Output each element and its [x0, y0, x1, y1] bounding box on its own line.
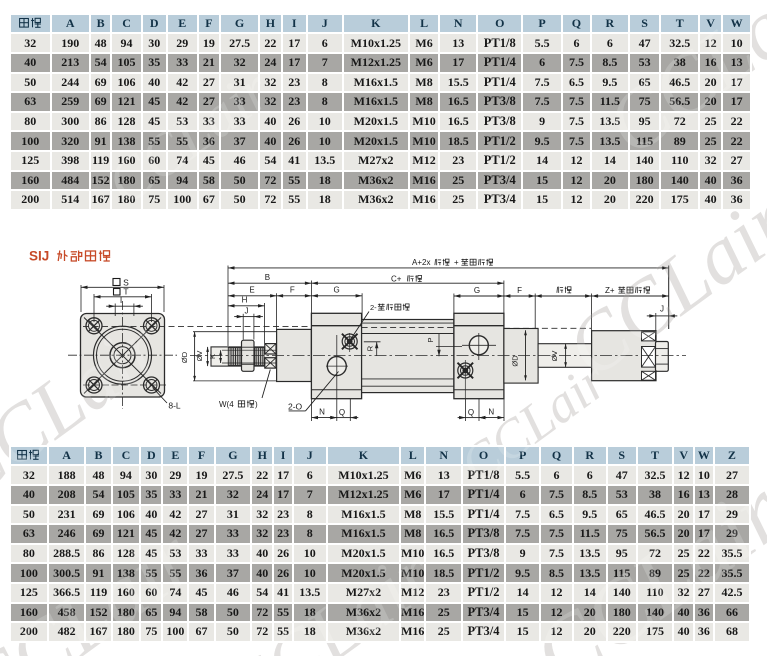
svg-text:H: H	[242, 296, 248, 305]
svg-text:N: N	[488, 408, 494, 417]
svg-text:ØD: ØD	[511, 355, 520, 367]
svg-text:J: J	[660, 304, 664, 313]
svg-text:A+2x: A+2x	[412, 258, 430, 267]
svg-text:2-O: 2-O	[288, 402, 303, 412]
svg-text:ØV: ØV	[195, 351, 204, 362]
svg-text:T: T	[123, 287, 128, 297]
svg-text:G: G	[474, 286, 480, 295]
svg-text:F: F	[290, 286, 295, 295]
svg-text:): )	[255, 400, 258, 409]
svg-text:G: G	[333, 286, 339, 295]
svg-text:P: P	[426, 337, 435, 342]
svg-text:I: I	[120, 295, 122, 305]
svg-text:B: B	[265, 273, 270, 282]
svg-text:W(4: W(4	[219, 400, 234, 409]
svg-text:Z+: Z+	[605, 286, 615, 295]
svg-text:C+: C+	[391, 274, 402, 283]
svg-text:ØV: ØV	[550, 351, 559, 362]
svg-text:Q: Q	[339, 408, 345, 417]
svg-text:SIJ: SIJ	[29, 249, 49, 264]
svg-text:J: J	[245, 306, 249, 315]
svg-text:Q: Q	[468, 408, 474, 417]
svg-text:ØD: ØD	[180, 351, 189, 363]
svg-text:F: F	[517, 286, 522, 295]
svg-text:K: K	[208, 354, 217, 359]
svg-text:E: E	[249, 286, 254, 295]
svg-text:2-: 2-	[370, 303, 377, 312]
svg-text:R: R	[366, 345, 375, 351]
svg-text:8-L: 8-L	[168, 401, 181, 411]
svg-text:+: +	[454, 258, 459, 267]
svg-text:N: N	[319, 408, 325, 417]
